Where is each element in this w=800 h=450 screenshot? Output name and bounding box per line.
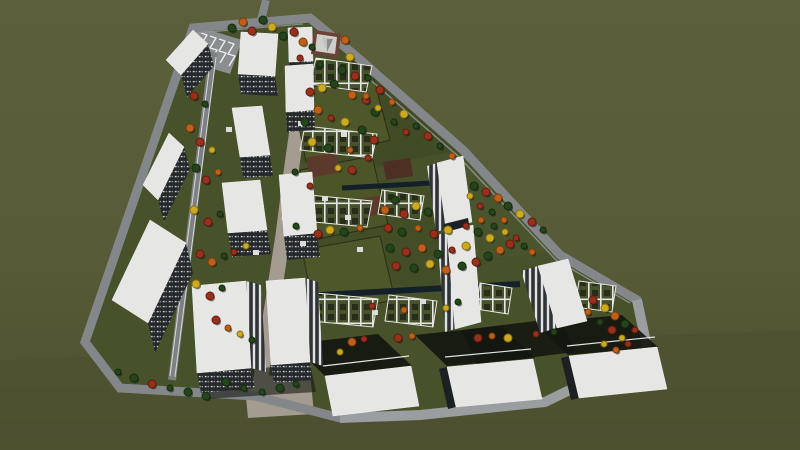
tree [208,258,216,266]
tree [528,218,536,226]
tree [148,380,156,388]
tree [489,209,495,215]
tree [381,206,389,214]
tree [217,211,223,217]
tower-Ta-roof [192,281,251,373]
slab-S1-roof [447,359,542,407]
tree [293,381,299,387]
roof-box [322,196,328,201]
render-viewport[interactable] [0,0,800,450]
tree [346,53,354,61]
tree [551,329,557,335]
tree [613,347,619,353]
tree [391,196,399,204]
tree [351,72,359,80]
tree [241,385,247,391]
tree [318,84,326,92]
tree [501,217,507,223]
tree [276,384,284,392]
tree [239,18,247,26]
tree [192,164,200,172]
tree [521,243,527,249]
tree [434,250,442,258]
tree [474,334,482,342]
tower-M1-roof [238,32,278,76]
tree [259,16,267,24]
roof-box [341,132,347,137]
tree [463,223,469,229]
slab-S2-roof [569,347,667,398]
tree [317,61,323,67]
tower-M2-facade [240,155,273,178]
tree [309,44,315,50]
tree [348,338,356,346]
scene-root [0,0,800,450]
tree [444,226,452,234]
tree [190,92,198,100]
tree [386,244,394,252]
tree [502,229,508,235]
tree [430,230,438,238]
tree [215,169,221,175]
tree [589,296,597,304]
tree [426,260,434,268]
tree [470,182,478,190]
tree [601,341,607,347]
tree [306,88,314,96]
tower-Tb-facade-south [271,362,313,383]
tree [504,202,512,210]
tree [474,228,482,236]
tree [467,193,473,199]
roof-box [357,247,363,252]
tree [482,188,490,196]
tree [186,124,194,132]
tree [392,262,400,270]
tree [369,303,375,309]
tree [486,234,494,242]
tree [384,224,392,232]
tree [202,392,210,400]
tree [290,28,298,36]
tower-M3-roof [222,180,267,233]
tree [314,230,322,238]
tree [361,336,367,342]
tree [293,223,299,229]
tree [449,247,455,253]
tree [196,138,204,146]
tree [365,75,371,81]
tree [341,118,349,126]
tree [504,334,512,342]
tree [314,106,322,114]
tree [400,110,408,118]
tree [400,210,408,218]
tree [513,235,519,241]
tree [358,126,366,134]
tree [212,316,220,324]
roof-box [420,299,426,304]
tree [206,292,214,300]
tree [409,333,415,339]
tree [632,327,638,333]
tree [597,319,603,325]
tree [228,24,236,32]
tree [326,226,334,234]
tree [375,105,381,111]
tree [391,119,397,125]
tree [196,250,204,258]
tree [472,258,480,266]
roof-box [300,241,306,246]
tree [192,280,200,288]
tree [491,223,497,229]
tree [115,369,121,375]
tree [412,202,420,210]
tree [625,341,631,347]
tree [455,299,461,305]
tree [204,218,212,226]
tree [442,266,450,274]
tree [221,253,227,259]
tree [202,101,208,107]
tree [130,374,138,382]
tree [297,55,303,61]
tree [611,312,619,320]
rowhouses-6 [385,295,437,327]
tree [268,23,276,31]
tree [365,155,371,161]
roof-box [226,127,232,132]
tree [394,334,402,342]
tower-R2-facade [284,233,320,260]
tree [209,147,215,153]
tree [328,115,334,121]
masterplan-render-canvas [0,0,800,450]
tree [190,206,198,214]
tree [401,307,407,313]
tree [363,93,369,99]
tree [222,378,230,386]
tree [462,242,470,250]
tree [167,385,173,391]
tree [341,36,349,44]
tree [458,262,466,270]
tree [337,349,343,355]
tree [248,27,256,35]
tree [619,335,625,341]
tree [529,249,535,255]
tree [357,225,363,231]
tree [443,305,449,311]
tree [424,132,432,140]
tree [225,325,231,331]
tree [301,118,309,126]
tree [621,320,629,328]
tree [496,246,504,254]
tree [424,208,432,216]
tree [410,264,418,272]
tree [370,136,378,144]
tree [478,217,484,223]
tree [307,183,313,189]
tree [489,333,495,339]
tree [585,309,591,315]
tree [516,210,524,218]
tree [484,252,492,260]
tree [540,227,546,233]
tree [308,138,316,146]
tree [348,166,356,174]
tree [259,389,265,395]
tree [601,304,609,312]
tree [237,331,243,337]
tree [418,244,426,252]
tree [347,147,353,153]
rowhouses-8 [476,283,512,314]
tree [324,144,332,152]
tree [219,285,225,291]
tree [437,143,443,149]
tree [340,228,348,236]
tree [608,326,616,334]
roof-box [253,250,259,255]
roof-box [372,310,378,315]
tree [243,243,249,249]
tree [376,86,384,94]
tree [402,248,410,256]
tree [398,228,406,236]
tree [533,331,539,337]
tree [389,99,395,105]
tree [413,123,419,129]
tree [249,337,255,343]
tree [338,66,346,74]
tree [292,169,298,175]
tree [335,165,341,171]
tower-M1-facade [238,74,278,96]
roof-box [345,215,351,220]
tree [415,225,421,231]
tower-Tb-roof [266,278,310,365]
tree [403,129,409,135]
tree [231,249,237,255]
tree [348,91,356,99]
tree [449,153,455,159]
tree [184,388,192,396]
tree [202,176,210,184]
tree [279,32,287,40]
tree [299,38,307,46]
tree [506,240,514,248]
tree [494,194,502,202]
tree [477,203,483,209]
tree [330,80,338,88]
